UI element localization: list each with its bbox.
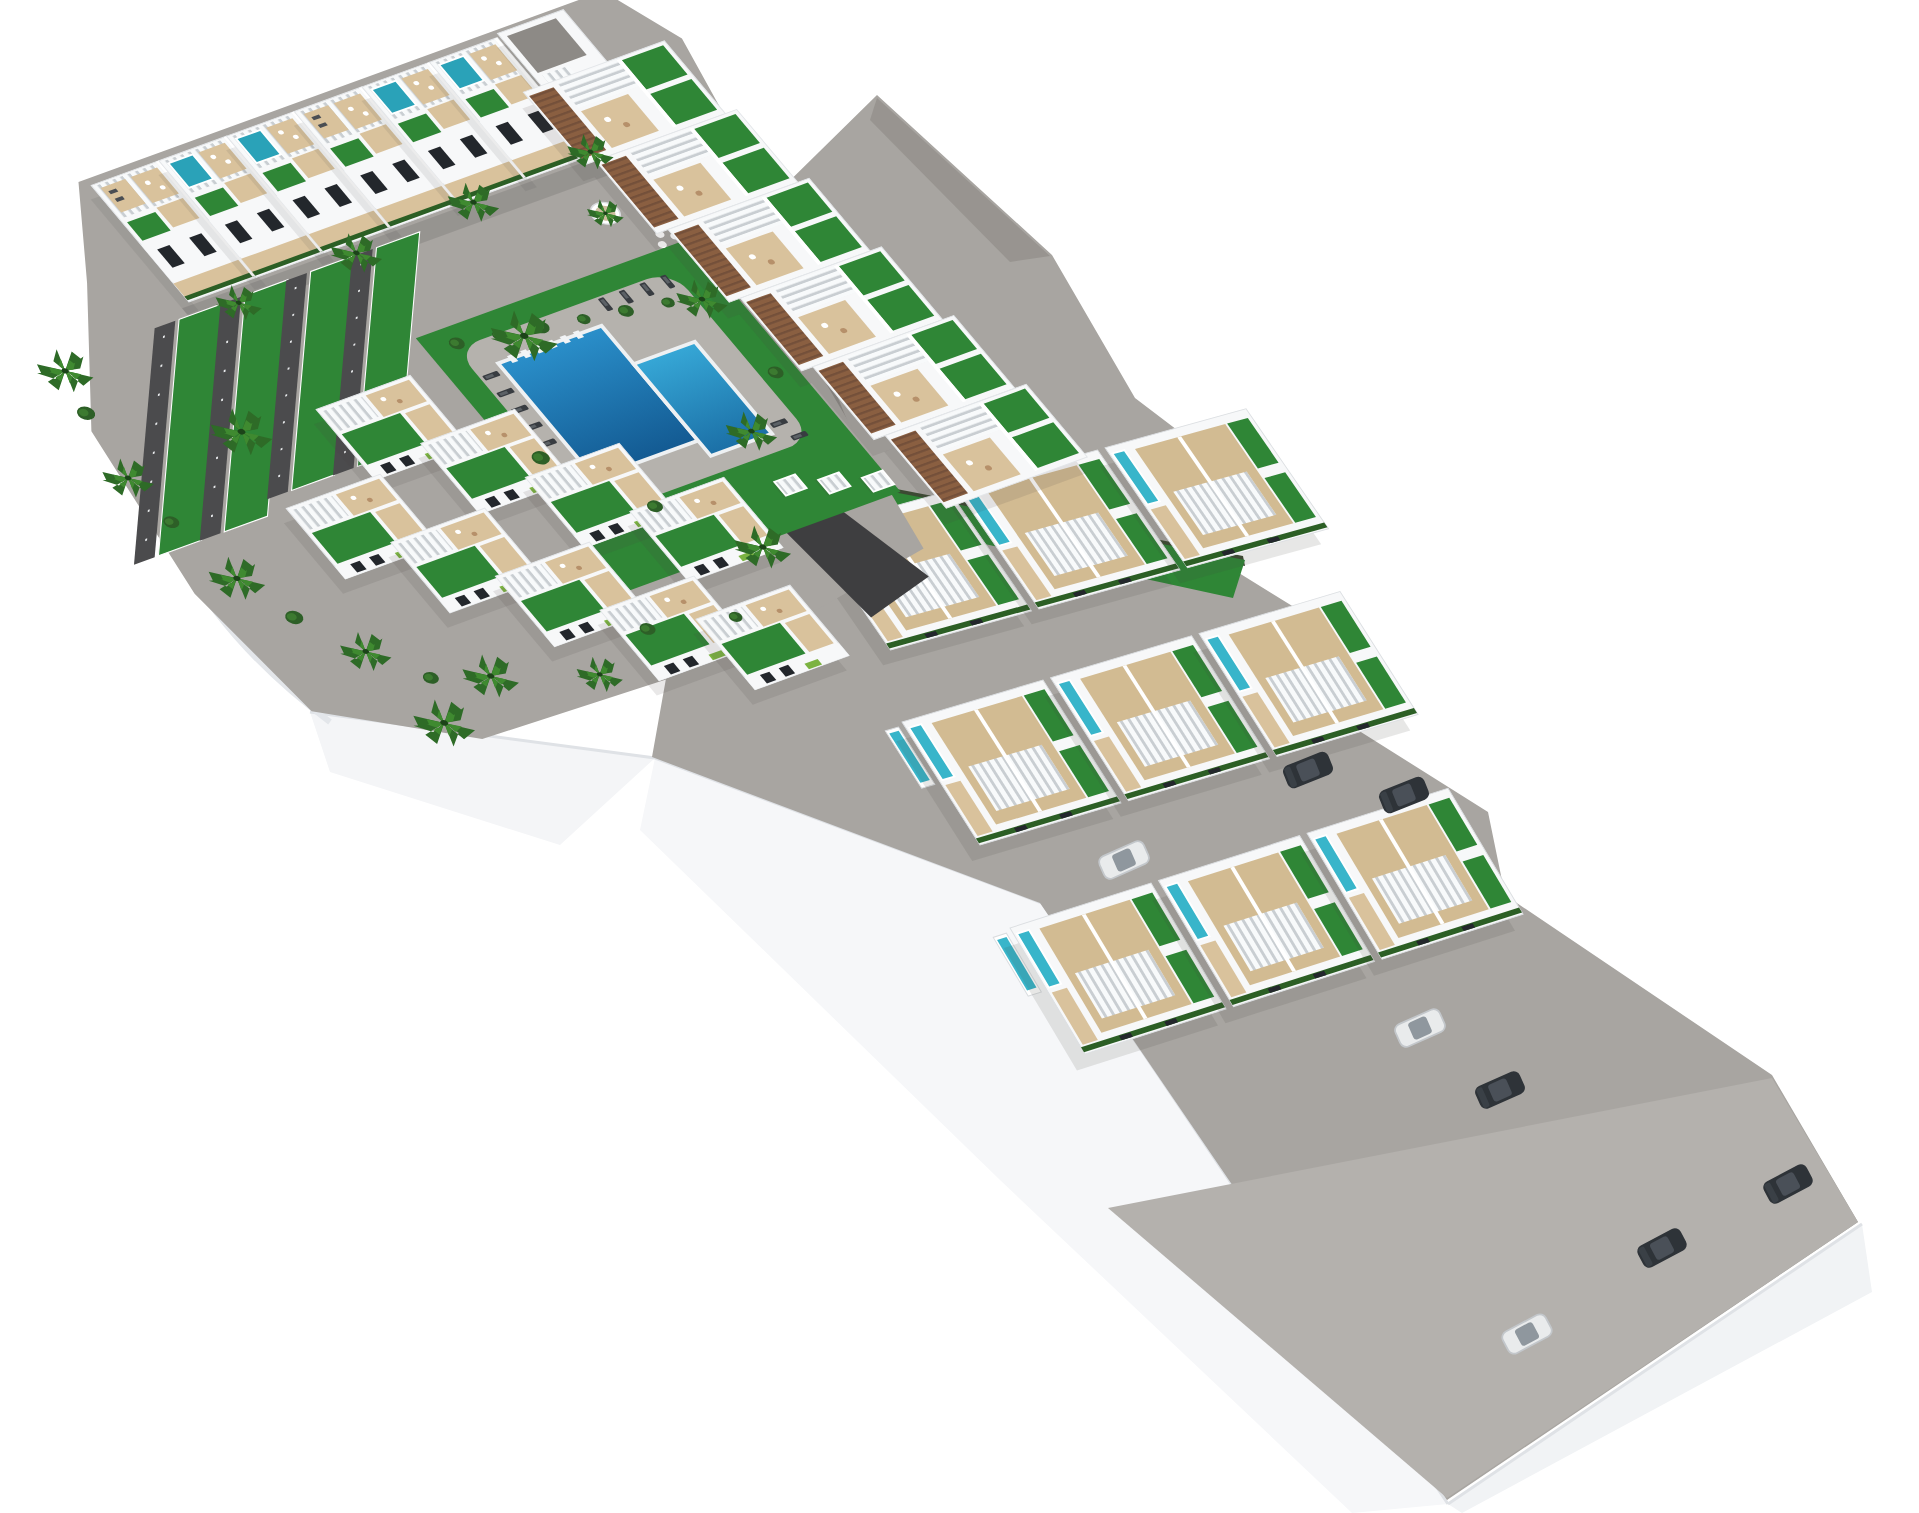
render-canvas: Aerial 3D architectural render of a whit… [0, 0, 1919, 1513]
masterplan-render [0, 0, 1919, 1513]
